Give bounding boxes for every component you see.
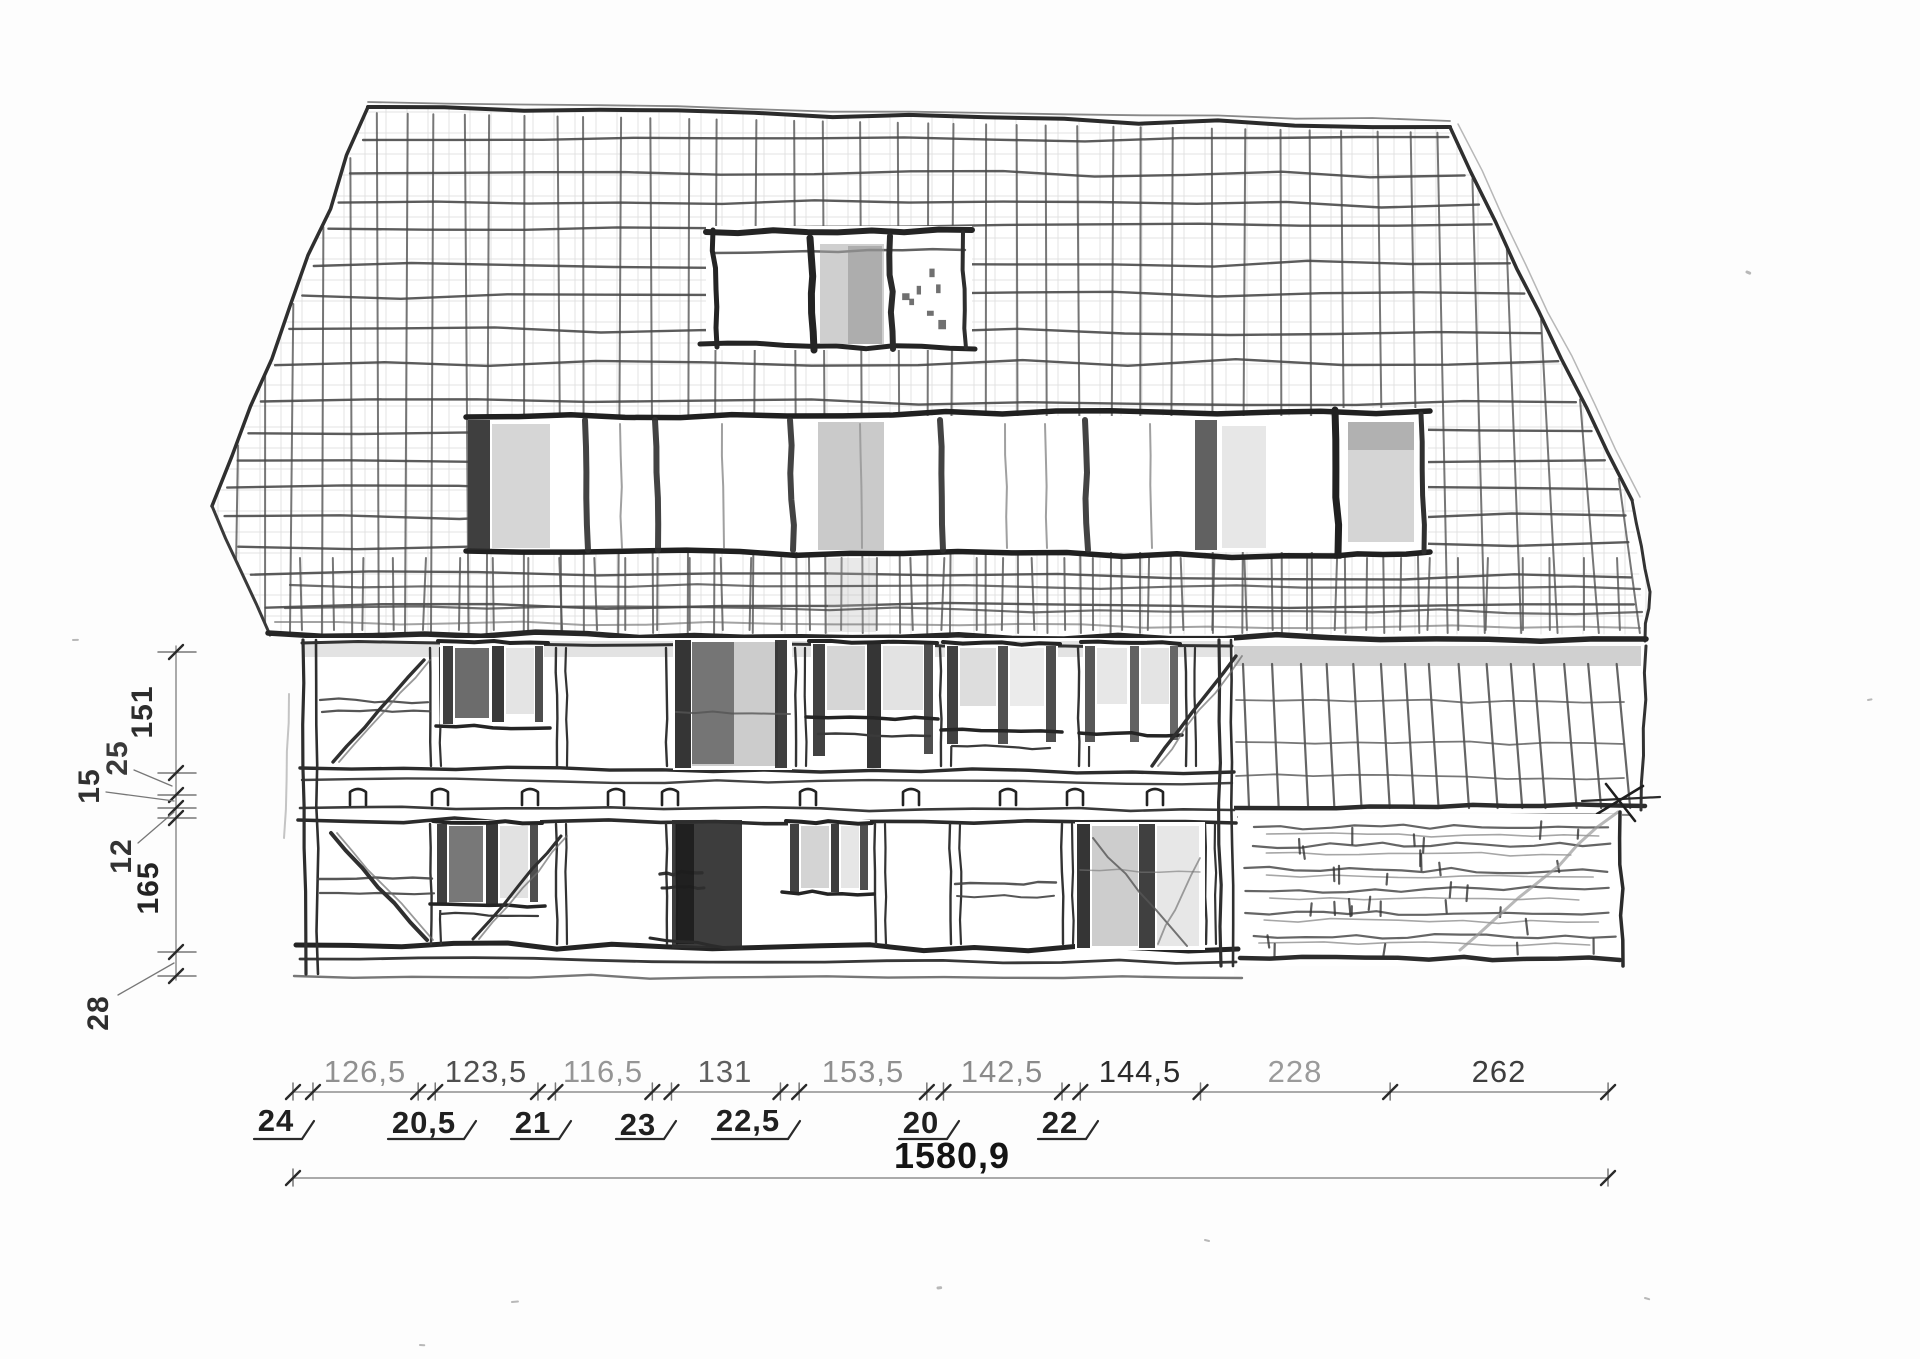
vertical-dim-label: 151 xyxy=(126,685,159,738)
bay-width-label: 228 xyxy=(1268,1054,1323,1089)
sketch-fill xyxy=(1077,824,1090,948)
facade-elevation-sketch: 126,5 123,5 116,5 131 153,5 142,5 144,5 … xyxy=(0,0,1920,1359)
post xyxy=(430,648,431,766)
plank-joint-tick xyxy=(1517,943,1518,955)
plank-joint-tick xyxy=(1387,874,1388,885)
sketch-fill xyxy=(1157,826,1199,946)
band-mullion-dark xyxy=(1195,420,1217,550)
vertical-dim-label: 28 xyxy=(82,995,115,1030)
plank-joint-tick xyxy=(1334,868,1335,882)
sketch-fill xyxy=(867,644,881,768)
plank-joint-tick xyxy=(1334,902,1335,915)
sketch-fill xyxy=(1139,824,1155,948)
band-mullion xyxy=(655,420,658,550)
bay-width-label: 126,5 xyxy=(324,1054,407,1089)
sketch-stroke xyxy=(1002,558,1003,630)
door-dark xyxy=(676,824,694,944)
label-slash xyxy=(464,1121,476,1139)
scan-speckle xyxy=(1868,699,1871,700)
plank-joint-tick xyxy=(1540,821,1541,839)
band-cap-left xyxy=(468,420,490,550)
post xyxy=(1078,648,1079,766)
sketch-stroke xyxy=(459,558,460,630)
bay-width-labels: 126,5 123,5 116,5 131 153,5 142,5 144,5 … xyxy=(324,1054,1527,1089)
sketch-fill xyxy=(827,646,865,710)
plank-joint-tick xyxy=(1439,863,1440,876)
band-pane-shaded xyxy=(818,422,884,550)
sketch-fill xyxy=(841,826,859,888)
bay-width-label: 153,5 xyxy=(822,1054,905,1089)
sketch-fill xyxy=(860,824,868,890)
sketch-fill xyxy=(775,640,787,768)
window-head xyxy=(943,642,1060,645)
bay-width-label: 131 xyxy=(698,1054,753,1089)
pane-mark xyxy=(917,286,921,295)
post xyxy=(795,648,796,766)
sketch-fill xyxy=(1097,648,1127,704)
sill-rail xyxy=(320,893,434,894)
drip-line xyxy=(284,694,289,838)
sketch-stroke xyxy=(1064,558,1065,630)
sketch-stroke xyxy=(524,116,525,633)
window-head xyxy=(1081,642,1180,644)
vertical-dim-label: 165 xyxy=(132,861,165,914)
bay-width-label: 116,5 xyxy=(563,1054,643,1089)
plank-joint-tick xyxy=(1450,882,1451,897)
bay-width-label: 144,5 xyxy=(1099,1054,1182,1089)
sketch-stroke xyxy=(1272,558,1273,630)
lower-swept-roof-right xyxy=(1233,646,1660,821)
post-width-label: 22 xyxy=(1042,1105,1078,1140)
vertical-dim-labels: 151 25 15 12 165 28 xyxy=(73,685,165,1030)
sketch-stroke xyxy=(362,558,363,630)
sketch-fill xyxy=(1010,648,1044,706)
sketch-fill xyxy=(692,642,734,764)
post-width-label: 23 xyxy=(620,1107,656,1142)
plank-joint-tick xyxy=(1414,834,1415,845)
sketch-fill xyxy=(1092,826,1138,946)
pane-mark xyxy=(936,284,941,293)
post xyxy=(666,648,667,766)
scan-speckle xyxy=(1747,272,1750,273)
band-mullion xyxy=(1085,420,1088,550)
pane-mark xyxy=(927,311,934,316)
sketch-stroke xyxy=(1400,558,1401,630)
label-slash xyxy=(559,1121,571,1139)
post xyxy=(430,824,432,944)
total-width-label: 1580,9 xyxy=(894,1135,1010,1176)
label-slash xyxy=(1086,1121,1098,1139)
sketch-fill xyxy=(455,648,489,718)
end-window-left xyxy=(1335,410,1339,554)
sketch-fill xyxy=(675,640,691,768)
dormer-mullion xyxy=(810,238,814,350)
plank-joint-tick xyxy=(1578,830,1579,839)
sketch-fill xyxy=(443,646,453,724)
sketch-fill xyxy=(437,824,447,904)
sketch-fill xyxy=(506,648,534,714)
post-width-label: 20,5 xyxy=(392,1105,456,1140)
leader-line xyxy=(138,812,174,843)
plank-joint-tick xyxy=(1446,900,1447,913)
sketch-fill xyxy=(1085,646,1095,742)
pane-mark xyxy=(929,269,934,278)
plank-siding-wall xyxy=(1238,812,1623,966)
eaves-shadow xyxy=(1233,646,1641,666)
dormer-top xyxy=(706,230,972,234)
band-bottom xyxy=(1335,552,1430,556)
sketch-fill xyxy=(535,646,543,722)
bay-width-label: 262 xyxy=(1472,1054,1527,1089)
sketch-fill xyxy=(1130,646,1139,742)
sketch-fill xyxy=(1170,646,1178,740)
pane-mark xyxy=(909,299,914,305)
post-width-label: 21 xyxy=(515,1105,551,1140)
leader-line xyxy=(106,792,174,801)
sketch-stroke xyxy=(393,558,394,630)
sketch-fill xyxy=(883,646,923,710)
pane-mark xyxy=(902,293,909,300)
sketch-fill xyxy=(1141,648,1169,704)
sketch-fill xyxy=(486,824,498,904)
leader-line xyxy=(118,963,174,995)
post xyxy=(885,824,886,944)
sketch-stroke xyxy=(1148,558,1149,630)
scanned-sketch-page: 126,5 123,5 116,5 131 153,5 142,5 144,5 … xyxy=(0,0,1920,1359)
sketch-stroke xyxy=(1366,558,1367,630)
band-mullion xyxy=(940,420,943,550)
sketch-stroke xyxy=(583,117,584,633)
sketch-fill xyxy=(790,824,799,892)
sketch-stroke xyxy=(809,558,810,630)
sketch-fill xyxy=(960,648,996,706)
scan-speckle xyxy=(1645,1298,1649,1299)
post xyxy=(666,824,667,944)
sketch-fill xyxy=(924,644,933,754)
vertical-dim-label: 15 xyxy=(73,768,106,803)
post-width-label: 22,5 xyxy=(716,1103,780,1138)
bay-width-label: 123,5 xyxy=(445,1054,528,1089)
shade-streak xyxy=(828,558,876,632)
band-mullion xyxy=(585,420,588,550)
sketch-fill xyxy=(831,824,839,892)
band-pane-shaded xyxy=(1222,426,1266,548)
label-slash xyxy=(302,1121,314,1139)
post-width-label: 24 xyxy=(258,1103,294,1138)
window-head xyxy=(433,821,542,823)
sketch-stroke xyxy=(493,558,494,630)
plank-joint-tick xyxy=(1423,838,1424,853)
post xyxy=(1185,648,1187,766)
dormer-skylight xyxy=(700,226,975,350)
label-slash xyxy=(788,1121,800,1139)
sketch-fill xyxy=(492,646,504,722)
band-face xyxy=(468,416,1428,552)
window-head xyxy=(809,641,937,643)
label-slash xyxy=(664,1121,676,1139)
scan-speckle xyxy=(1205,1240,1209,1241)
plank-joint-tick xyxy=(1467,885,1468,901)
sketch-fill xyxy=(813,644,825,756)
plank-joint-tick xyxy=(1299,839,1300,854)
end-window-shade xyxy=(1348,422,1414,450)
sketch-stroke xyxy=(927,123,928,633)
sketch-fill xyxy=(801,826,829,888)
plank-joint-tick xyxy=(1310,903,1311,915)
bay-width-label: 142,5 xyxy=(961,1054,1044,1089)
window-sill xyxy=(806,717,938,719)
sketch-stroke xyxy=(1122,558,1123,630)
plank-joint-tick xyxy=(1369,897,1370,910)
sketch-stroke xyxy=(333,558,334,630)
plank-joint-tick xyxy=(1349,899,1351,916)
sketch-fill xyxy=(1046,646,1056,742)
band-pane-shaded xyxy=(492,424,550,548)
post xyxy=(1205,824,1207,944)
sketch-fill xyxy=(449,826,483,902)
dormer-pane-shaded xyxy=(848,246,882,344)
pane-mark xyxy=(938,320,946,329)
post xyxy=(940,648,942,766)
window-head xyxy=(438,641,548,643)
